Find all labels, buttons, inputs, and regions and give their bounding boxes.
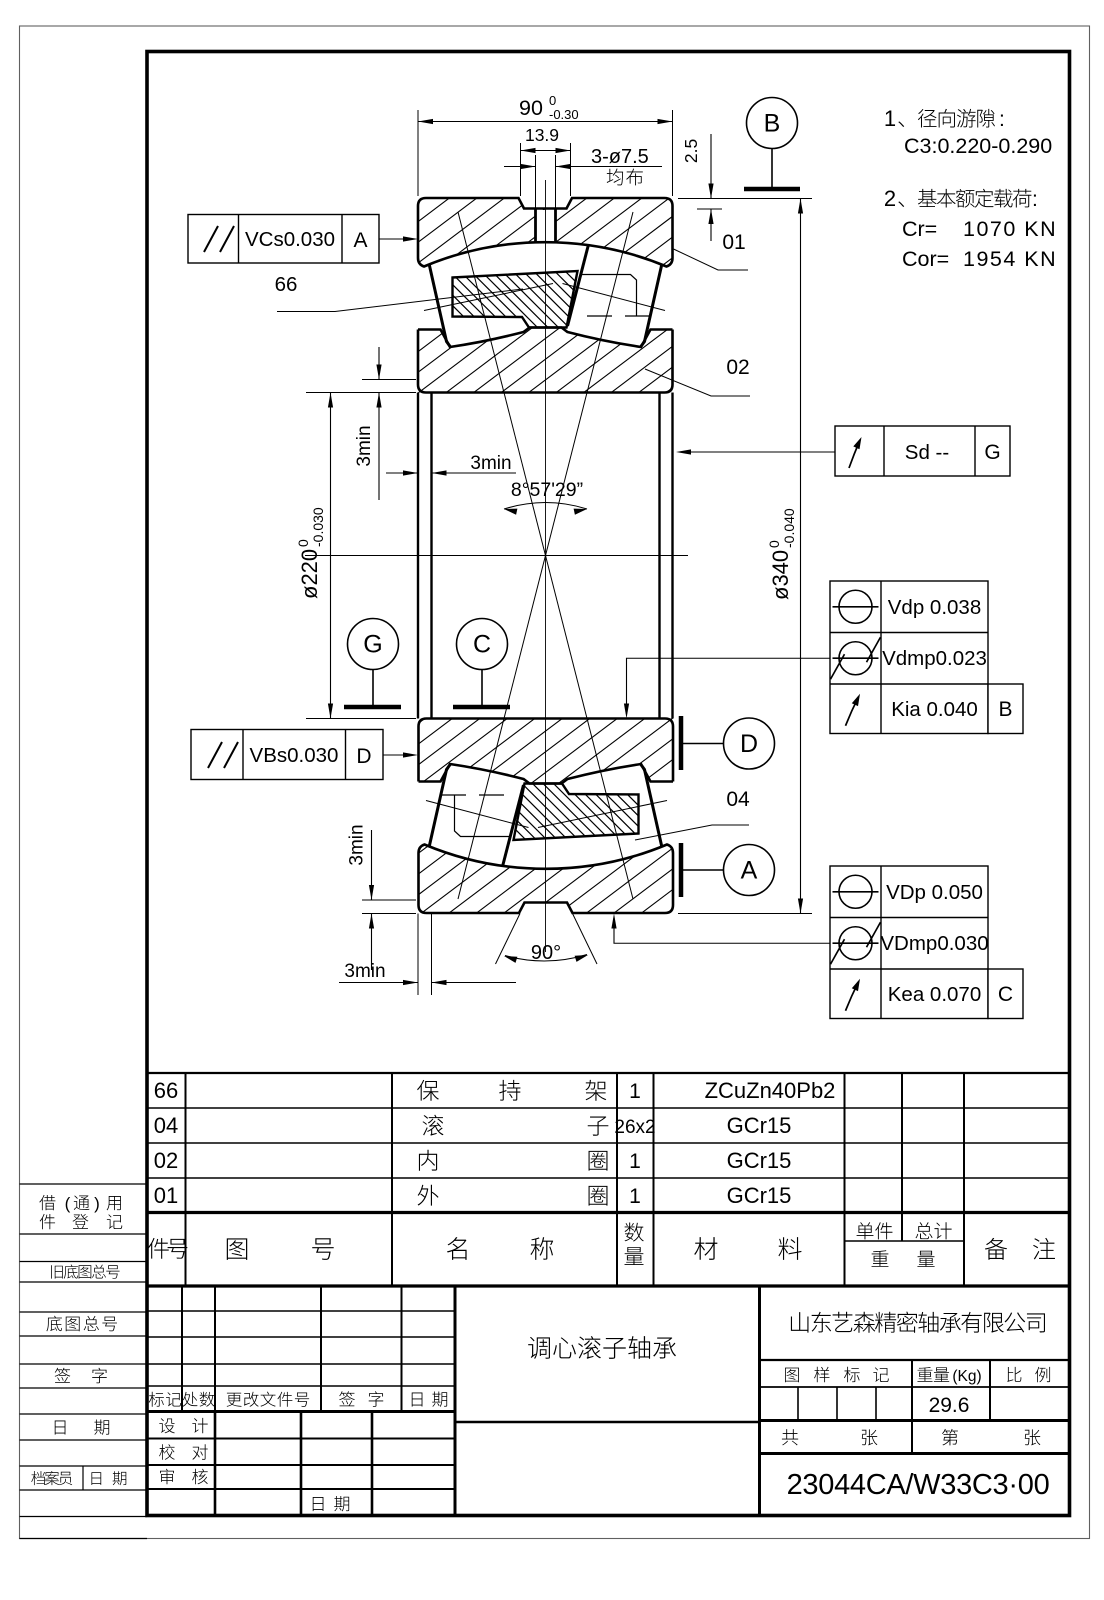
svg-text:-0.30: -0.30	[549, 107, 579, 122]
svg-text:2.5: 2.5	[681, 139, 701, 163]
svg-text:Cr=: Cr=	[902, 217, 937, 241]
svg-text:29.6: 29.6	[929, 1394, 970, 1417]
svg-text:(: (	[65, 1194, 71, 1213]
svg-text:A: A	[353, 229, 367, 252]
svg-text:02: 02	[154, 1148, 178, 1173]
svg-text:B: B	[998, 698, 1012, 721]
svg-text:1: 1	[629, 1185, 641, 1208]
svg-text::: :	[1032, 188, 1038, 211]
svg-text:1070 KN: 1070 KN	[963, 217, 1057, 241]
svg-text:ø340: ø340	[768, 550, 793, 600]
svg-text:): )	[94, 1194, 100, 1213]
svg-text:G: G	[363, 631, 382, 659]
svg-text:0: 0	[549, 93, 556, 108]
svg-text:1954 KN: 1954 KN	[963, 247, 1057, 271]
svg-text:26x2: 26x2	[614, 1117, 655, 1138]
svg-text:C: C	[473, 631, 491, 659]
svg-text:66: 66	[275, 273, 298, 296]
svg-text::: :	[999, 108, 1005, 131]
svg-text:02: 02	[726, 356, 749, 379]
svg-text:C: C	[998, 983, 1013, 1006]
svg-text:0: 0	[295, 539, 311, 547]
svg-text:0: 0	[766, 540, 782, 548]
svg-text:13.9: 13.9	[525, 125, 559, 145]
svg-text:90°: 90°	[531, 942, 561, 964]
svg-text:04: 04	[154, 1113, 178, 1138]
svg-text:ø220: ø220	[297, 549, 322, 599]
svg-text:01: 01	[722, 231, 745, 254]
svg-text:8°57'29”: 8°57'29”	[511, 479, 583, 501]
svg-text:3min: 3min	[470, 453, 511, 474]
svg-text:Kia 0.040: Kia 0.040	[891, 698, 978, 721]
svg-text:GCr15: GCr15	[727, 1113, 792, 1138]
svg-text:Cor=: Cor=	[902, 247, 949, 271]
svg-text:90: 90	[519, 96, 543, 120]
svg-text:04: 04	[726, 788, 750, 811]
svg-text:-0.030: -0.030	[310, 507, 326, 547]
svg-text:VDmp0.030: VDmp0.030	[880, 932, 988, 955]
svg-text:GCr15: GCr15	[727, 1183, 792, 1208]
svg-text:23044CA/W33C3·00: 23044CA/W33C3·00	[787, 1469, 1050, 1501]
svg-text:-0.040: -0.040	[781, 508, 797, 548]
svg-text:Vdp 0.038: Vdp 0.038	[888, 596, 981, 619]
svg-text:1: 1	[629, 1150, 641, 1173]
svg-text:1: 1	[884, 106, 896, 131]
svg-text:1: 1	[629, 1080, 641, 1103]
svg-text:Sd --: Sd --	[905, 441, 949, 464]
svg-text:G: G	[984, 441, 1000, 464]
svg-text:Kea 0.070: Kea 0.070	[888, 983, 981, 1006]
svg-text:B: B	[764, 110, 781, 138]
svg-text:01: 01	[154, 1183, 178, 1208]
svg-text:D: D	[356, 745, 371, 768]
svg-text:D: D	[740, 730, 758, 758]
svg-text:Vdmp0.023: Vdmp0.023	[882, 647, 987, 670]
svg-text:66: 66	[154, 1078, 178, 1103]
svg-text:C3:0.220-0.290: C3:0.220-0.290	[904, 134, 1052, 158]
svg-text:2: 2	[884, 186, 896, 211]
svg-text:A: A	[741, 857, 758, 885]
svg-text:VCs0.030: VCs0.030	[245, 228, 335, 251]
svg-text:3min: 3min	[344, 961, 385, 982]
svg-text:3-ø7.5: 3-ø7.5	[591, 146, 649, 168]
svg-text:(Kg): (Kg)	[952, 1368, 981, 1385]
svg-text:VDp 0.050: VDp 0.050	[886, 881, 983, 904]
svg-text:VBs0.030: VBs0.030	[250, 744, 339, 767]
svg-text:3min: 3min	[347, 824, 368, 865]
svg-text:3min: 3min	[354, 425, 375, 466]
svg-text:ZCuZn40Pb2: ZCuZn40Pb2	[705, 1078, 836, 1103]
svg-text:GCr15: GCr15	[727, 1148, 792, 1173]
